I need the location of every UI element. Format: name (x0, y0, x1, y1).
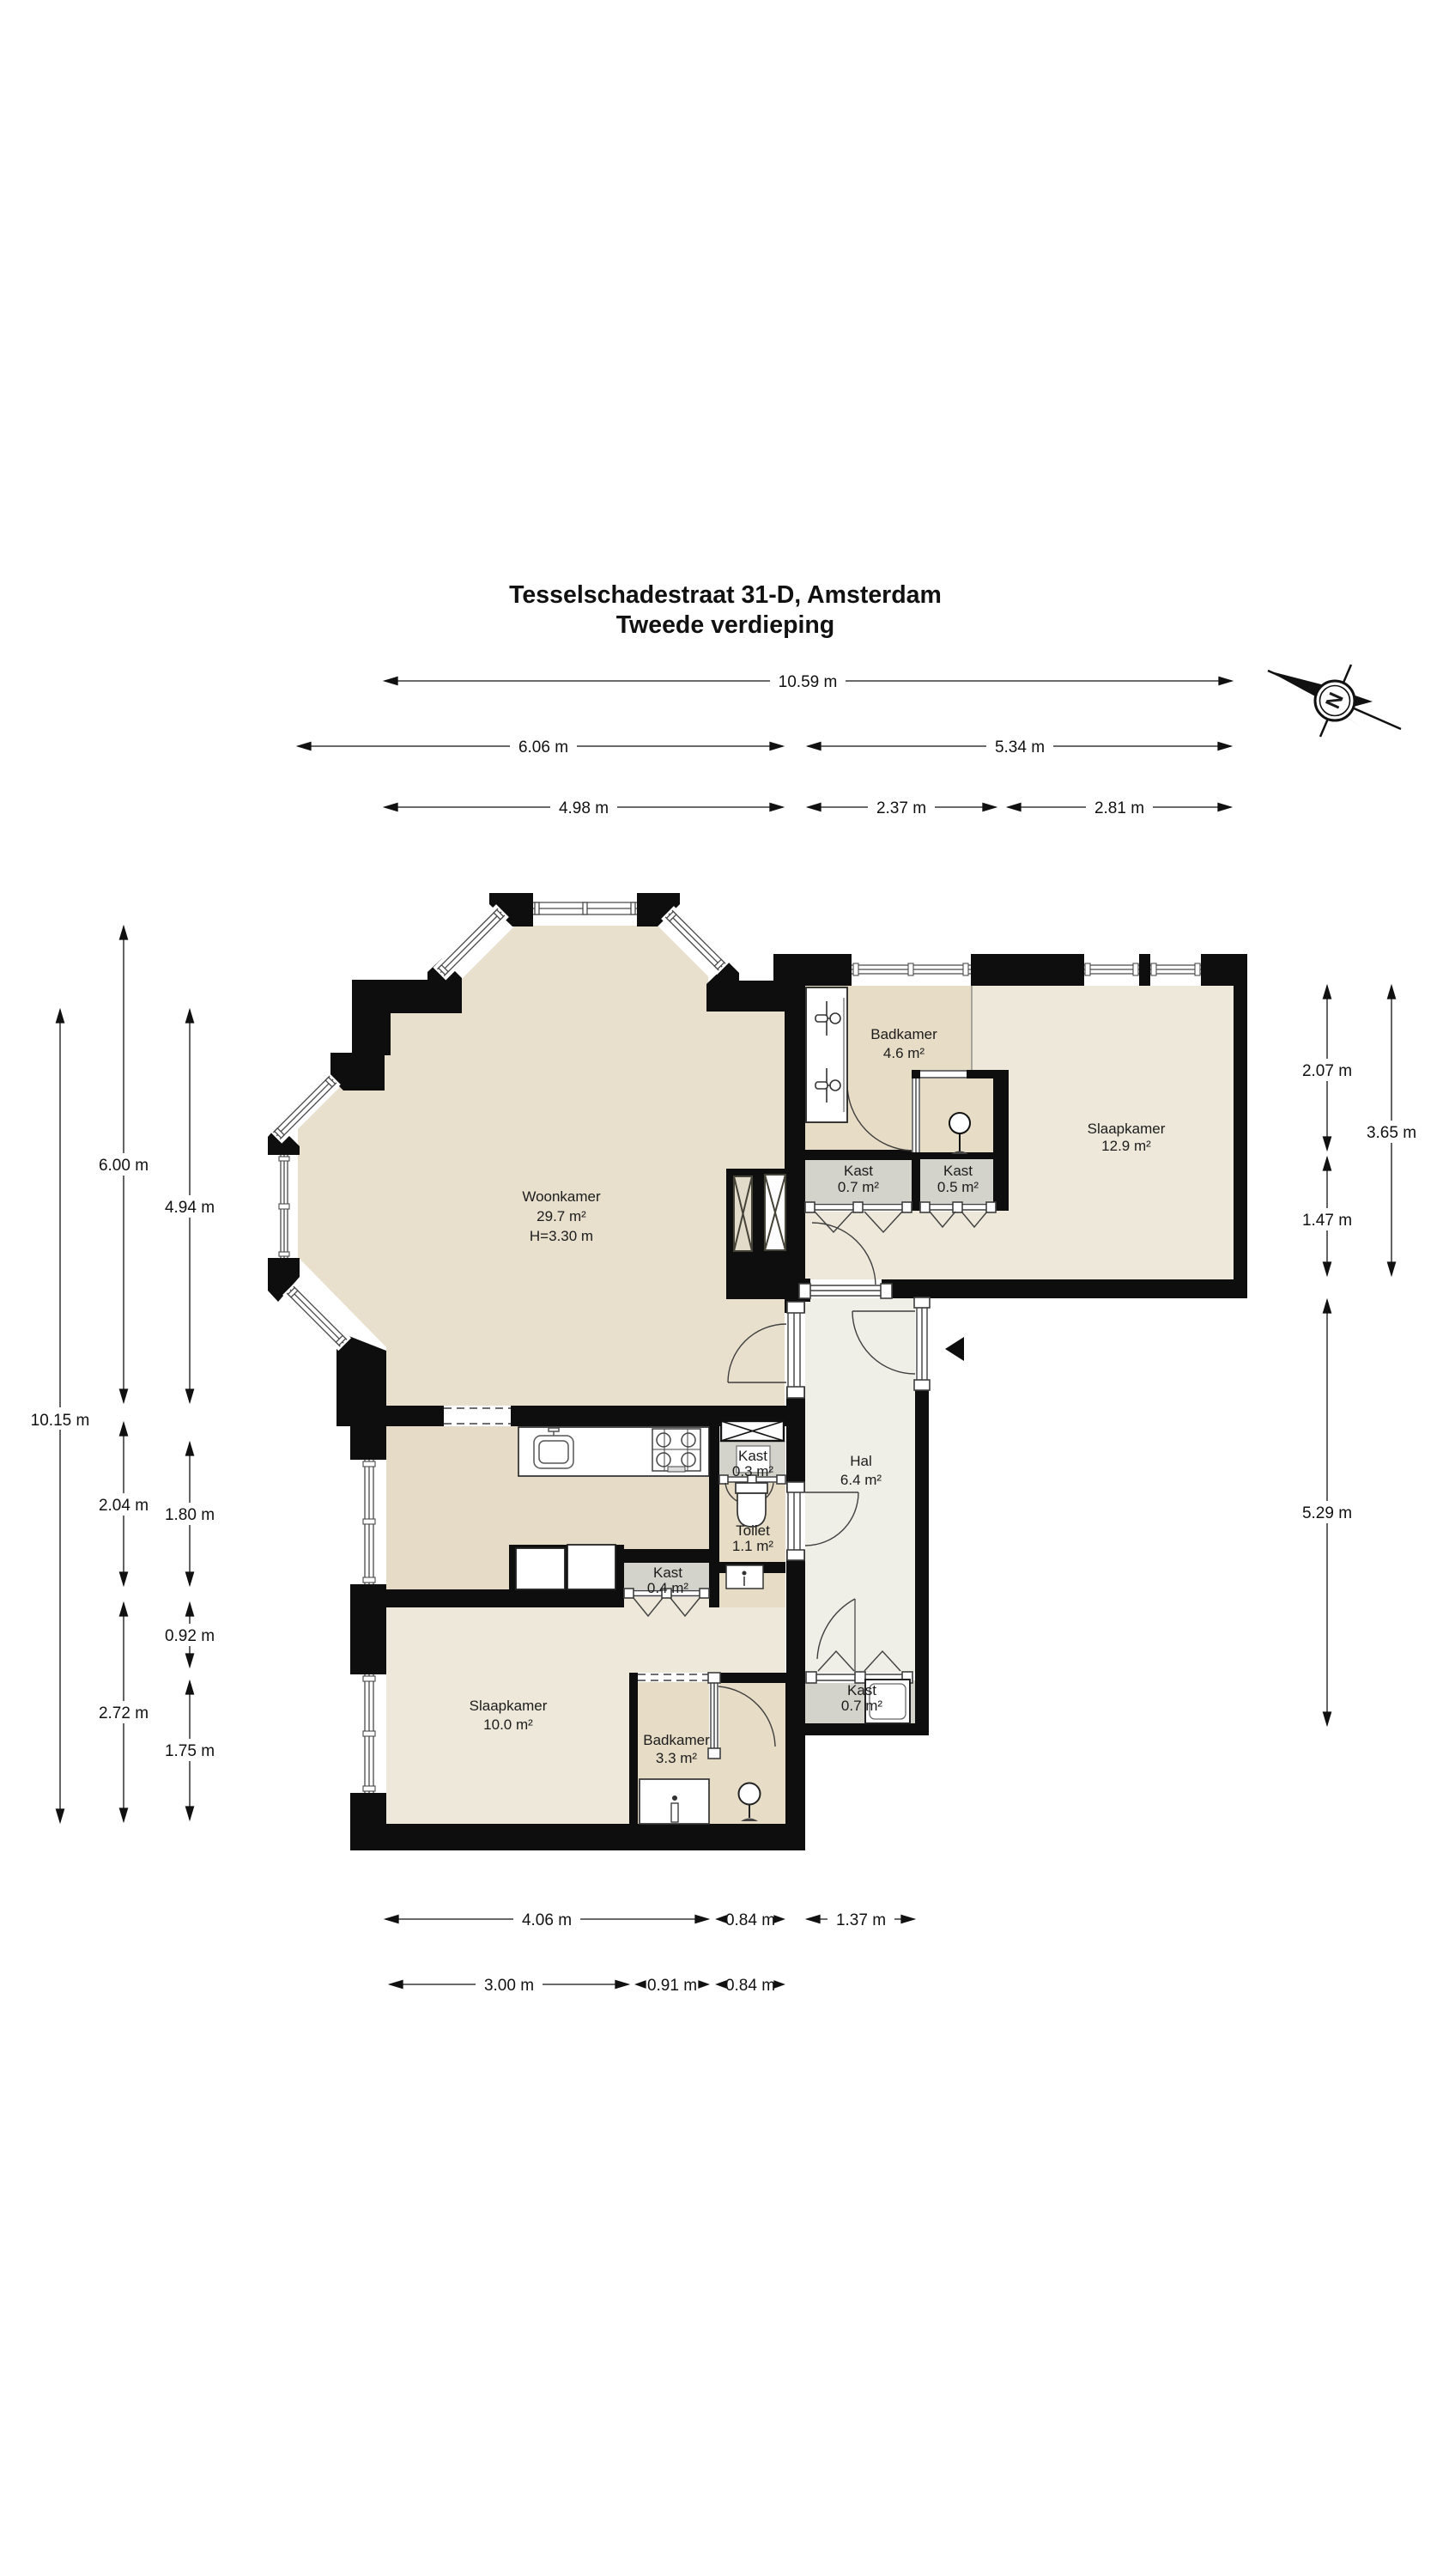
svg-text:4.06 m: 4.06 m (522, 1911, 572, 1929)
svg-text:1.80 m: 1.80 m (165, 1506, 215, 1524)
svg-text:Kast: Kast (653, 1564, 682, 1581)
svg-text:0.5 m²: 0.5 m² (937, 1179, 979, 1195)
svg-text:10.0 m²: 10.0 m² (483, 1716, 533, 1733)
svg-text:Slaapkamer: Slaapkamer (470, 1698, 548, 1714)
svg-text:Badkamer: Badkamer (643, 1732, 710, 1748)
svg-text:2.81 m: 2.81 m (1094, 799, 1144, 817)
svg-text:0.84 m: 0.84 m (725, 1911, 775, 1929)
svg-text:Woonkamer: Woonkamer (522, 1188, 601, 1205)
svg-text:Hal: Hal (850, 1453, 872, 1469)
svg-text:Tweede verdieping: Tweede verdieping (616, 611, 834, 639)
svg-text:10.15 m: 10.15 m (31, 1412, 90, 1430)
svg-text:6.00 m: 6.00 m (99, 1157, 149, 1175)
svg-text:3.00 m: 3.00 m (484, 1977, 534, 1995)
svg-text:0.84 m: 0.84 m (725, 1977, 775, 1995)
svg-text:12.9 m²: 12.9 m² (1101, 1138, 1151, 1154)
svg-text:2.72 m: 2.72 m (99, 1704, 149, 1722)
svg-text:2.37 m: 2.37 m (876, 799, 926, 817)
svg-text:Kast: Kast (847, 1682, 876, 1698)
svg-text:3.65 m: 3.65 m (1367, 1124, 1416, 1142)
svg-text:10.59 m: 10.59 m (779, 673, 838, 691)
svg-text:0.7 m²: 0.7 m² (841, 1698, 883, 1714)
svg-text:Slaapkamer: Slaapkamer (1088, 1121, 1166, 1137)
svg-text:6.06 m: 6.06 m (518, 738, 568, 756)
svg-text:1.47 m: 1.47 m (1302, 1212, 1352, 1230)
svg-text:3.3 m²: 3.3 m² (656, 1750, 698, 1766)
svg-text:4.94 m: 4.94 m (165, 1199, 215, 1217)
svg-text:1.75 m: 1.75 m (165, 1742, 215, 1760)
svg-text:0.92 m: 0.92 m (165, 1627, 215, 1645)
svg-text:2.07 m: 2.07 m (1302, 1062, 1352, 1080)
svg-text:29.7 m²: 29.7 m² (537, 1208, 586, 1224)
svg-text:2.04 m: 2.04 m (99, 1497, 149, 1515)
svg-text:Kast: Kast (738, 1448, 767, 1464)
svg-text:1.37 m: 1.37 m (836, 1911, 886, 1929)
svg-text:5.34 m: 5.34 m (995, 738, 1045, 756)
svg-text:4.98 m: 4.98 m (559, 799, 609, 817)
svg-text:1.1 m²: 1.1 m² (732, 1538, 774, 1554)
svg-text:Kast: Kast (844, 1163, 873, 1179)
svg-text:5.29 m: 5.29 m (1302, 1504, 1352, 1522)
svg-text:6.4 m²: 6.4 m² (840, 1472, 882, 1488)
svg-text:Tesselschadestraat 31-D, Amste: Tesselschadestraat 31-D, Amsterdam (509, 581, 942, 609)
svg-text:0.3 m²: 0.3 m² (732, 1463, 774, 1479)
svg-text:Kast: Kast (943, 1163, 973, 1179)
svg-text:H=3.30 m: H=3.30 m (530, 1228, 593, 1244)
svg-text:0.91 m: 0.91 m (647, 1977, 697, 1995)
svg-text:Badkamer: Badkamer (870, 1026, 937, 1042)
svg-text:0.4 m²: 0.4 m² (647, 1580, 689, 1596)
svg-text:4.6 m²: 4.6 m² (883, 1045, 925, 1061)
svg-text:0.7 m²: 0.7 m² (838, 1179, 880, 1195)
svg-text:Toilet: Toilet (736, 1522, 770, 1539)
